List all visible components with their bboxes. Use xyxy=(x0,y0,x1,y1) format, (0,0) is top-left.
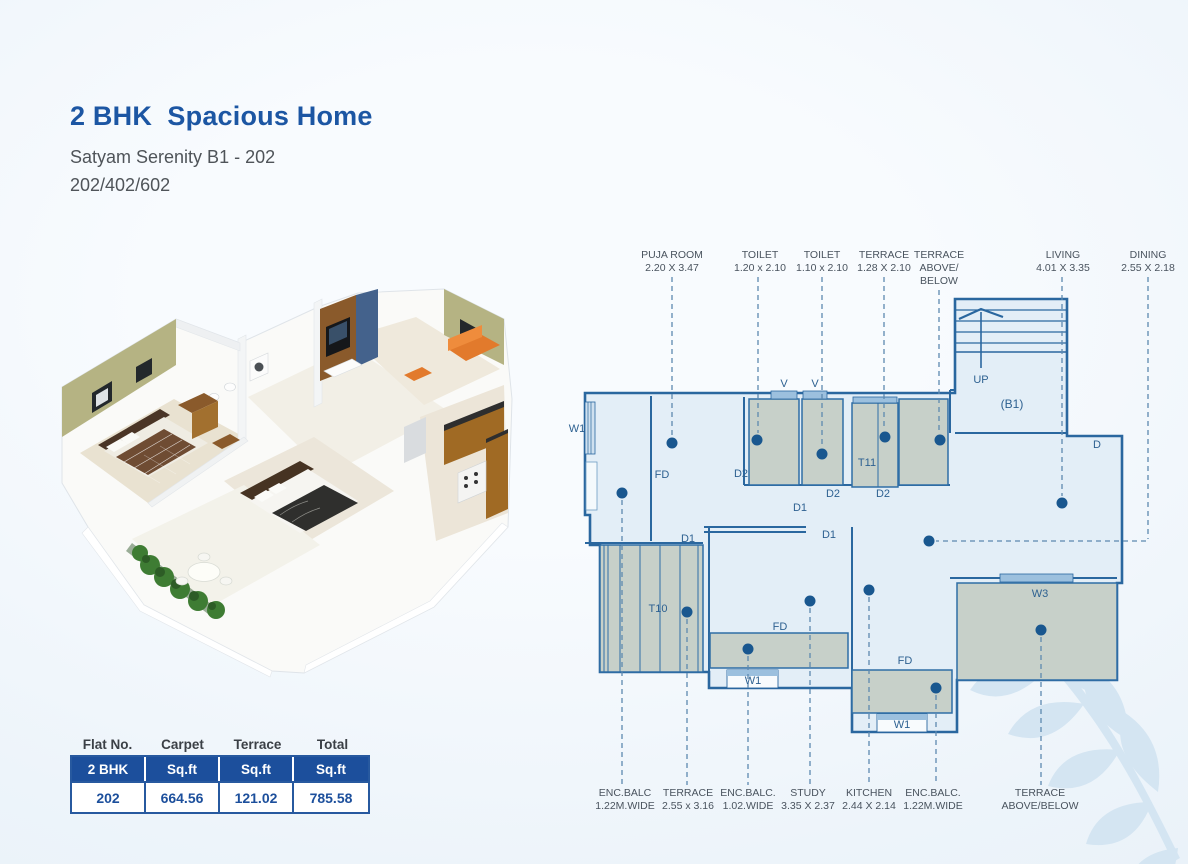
area-table-header: Flat No. Carpet Terrace Total xyxy=(70,733,370,755)
flat-number: 202 xyxy=(72,783,146,812)
flat-variants: 202/402/602 xyxy=(70,175,170,196)
mark-fd-study: FD xyxy=(773,621,788,633)
svg-text:1.22M.WIDE: 1.22M.WIDE xyxy=(903,800,963,812)
mark-fd-kitchen: FD xyxy=(898,655,913,667)
col-carpet: Carpet xyxy=(145,733,220,755)
room-label-living: LIVING 4.01 X 3.35 xyxy=(1036,249,1090,274)
svg-text:STUDY: STUDY xyxy=(790,787,826,799)
mark-v1: V xyxy=(780,378,788,390)
mark-d2-right: D2 xyxy=(876,488,890,500)
room-label-terrace-bottom: TERRACE 2.55 x 3.16 xyxy=(662,787,714,812)
svg-text:TERRACE: TERRACE xyxy=(914,249,964,261)
mark-w1-study: W1 xyxy=(745,675,762,687)
mark-w1-left: W1 xyxy=(569,423,586,435)
mark-d2-mid: D2 xyxy=(826,488,840,500)
room-label-terrace-above-below-bottom: TERRACE ABOVE/BELOW xyxy=(1001,787,1078,812)
mark-up: UP xyxy=(973,374,988,386)
brochure-page: 2 BHK Spacious Home Satyam Serenity B1 -… xyxy=(0,0,1188,864)
mark-d2-left: D2 xyxy=(734,468,748,480)
mark-t10: T10 xyxy=(649,603,668,615)
mark-d1-study: D1 xyxy=(822,529,836,541)
svg-text:TERRACE: TERRACE xyxy=(1015,787,1065,799)
area-table: Flat No. Carpet Terrace Total 2 BHK Sq.f… xyxy=(70,733,370,814)
svg-text:2.55 X 2.18: 2.55 X 2.18 xyxy=(1121,262,1175,274)
svg-text:TERRACE: TERRACE xyxy=(663,787,713,799)
svg-text:4.01 X 3.35: 4.01 X 3.35 xyxy=(1036,262,1090,274)
carpet-area: 664.56 xyxy=(146,783,220,812)
mark-b1: (B1) xyxy=(1001,397,1024,411)
svg-text:TOILET: TOILET xyxy=(804,249,841,261)
svg-text:ENC.BALC: ENC.BALC xyxy=(599,787,652,799)
room-label-terrace-above-below-top: TERRACE ABOVE/ BELOW xyxy=(914,249,964,287)
svg-text:2.44 X 2.14: 2.44 X 2.14 xyxy=(842,800,896,812)
room-label-toilet1: TOILET 1.20 x 2.10 xyxy=(734,249,786,274)
floor-plan: PUJA ROOM 2.20 X 3.47 TOILET 1.20 x 2.10… xyxy=(548,240,1188,825)
room-label-terrace-top: TERRACE 1.28 X 2.10 xyxy=(857,249,911,274)
carpet-unit: Sq.ft xyxy=(146,757,220,781)
mark-fd-bedroom: FD xyxy=(655,469,670,481)
svg-text:1.02.WIDE: 1.02.WIDE xyxy=(723,800,774,812)
room-label-kitchen: KITCHEN 2.44 X 2.14 xyxy=(842,787,896,812)
svg-text:1.28 X 2.10: 1.28 X 2.10 xyxy=(857,262,911,274)
svg-text:ABOVE/: ABOVE/ xyxy=(919,262,958,274)
col-terrace: Terrace xyxy=(220,733,295,755)
room-label-encbalc3: ENC.BALC. 1.22M.WIDE xyxy=(903,787,963,812)
svg-text:1.20 x 2.10: 1.20 x 2.10 xyxy=(734,262,786,274)
room-label-puja: PUJA ROOM 2.20 X 3.47 xyxy=(641,249,703,274)
terrace-area: 121.02 xyxy=(220,783,294,812)
mark-d-living: D xyxy=(1093,439,1101,451)
unit-type: 2 BHK xyxy=(72,757,146,781)
project-name: Satyam Serenity B1 - 202 xyxy=(70,147,275,168)
col-total: Total xyxy=(295,733,370,755)
svg-text:2.20 X 3.47: 2.20 X 3.47 xyxy=(645,262,699,274)
mark-w1-kitchen: W1 xyxy=(894,719,911,731)
svg-text:TERRACE: TERRACE xyxy=(859,249,909,261)
room-label-dining: DINING 2.55 X 2.18 xyxy=(1121,249,1175,274)
svg-text:PUJA ROOM: PUJA ROOM xyxy=(641,249,703,261)
room-label-study: STUDY 3.35 X 2.37 xyxy=(781,787,835,812)
svg-text:ENC.BALC.: ENC.BALC. xyxy=(905,787,960,799)
values-row: 202 664.56 121.02 785.58 xyxy=(72,781,368,812)
svg-text:DINING: DINING xyxy=(1130,249,1167,261)
svg-text:ENC.BALC.: ENC.BALC. xyxy=(720,787,775,799)
mark-t11: T11 xyxy=(858,457,876,469)
svg-text:LIVING: LIVING xyxy=(1046,249,1080,261)
room-label-encbalc2: ENC.BALC. 1.02.WIDE xyxy=(720,787,775,812)
mark-d1-corridor: D1 xyxy=(793,502,807,514)
page-title: 2 BHK Spacious Home xyxy=(70,101,373,132)
svg-text:KITCHEN: KITCHEN xyxy=(846,787,892,799)
svg-text:BELOW: BELOW xyxy=(920,275,958,287)
svg-text:1.10 x 2.10: 1.10 x 2.10 xyxy=(796,262,848,274)
mark-v2: V xyxy=(811,378,819,390)
svg-text:1.22M.WIDE: 1.22M.WIDE xyxy=(595,800,655,812)
mark-w3: W3 xyxy=(1032,588,1049,600)
svg-text:TOILET: TOILET xyxy=(742,249,779,261)
room-label-toilet2: TOILET 1.10 x 2.10 xyxy=(796,249,848,274)
total-unit: Sq.ft xyxy=(294,757,368,781)
svg-text:2.55 x 3.16: 2.55 x 3.16 xyxy=(662,800,714,812)
col-flat-no: Flat No. xyxy=(70,733,145,755)
unit-row: 2 BHK Sq.ft Sq.ft Sq.ft xyxy=(72,757,368,781)
svg-text:3.35 X 2.37: 3.35 X 2.37 xyxy=(781,800,835,812)
mark-d1-t10: D1 xyxy=(681,533,695,545)
isometric-3d-render xyxy=(52,275,532,685)
terrace-unit: Sq.ft xyxy=(220,757,294,781)
room-label-encbalc1: ENC.BALC 1.22M.WIDE xyxy=(595,787,655,812)
svg-text:ABOVE/BELOW: ABOVE/BELOW xyxy=(1001,800,1078,812)
total-area: 785.58 xyxy=(294,783,368,812)
